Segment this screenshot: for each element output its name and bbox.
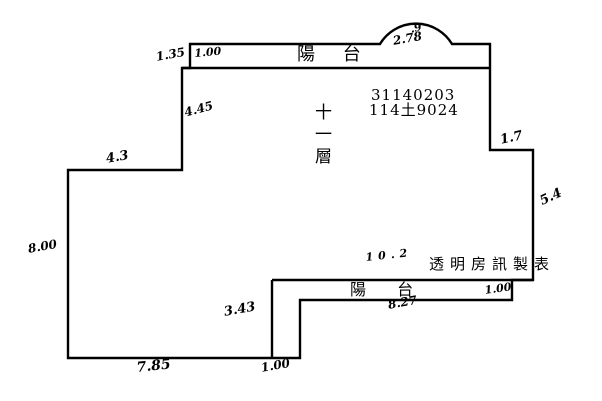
floor-label: 十一層 (312, 103, 329, 169)
dim-upper-balcony-left: 1.00 (194, 46, 222, 59)
dim-bottom-wall: 7.85 (136, 357, 171, 374)
unit-outline (68, 24, 533, 358)
publisher-label: 透明房訊製表 (429, 257, 555, 272)
dim-lower-balcony-end: 1.00 (484, 281, 512, 296)
floor-plan-sheet: 陽 台 31140203 114土9024 十一層 透明房訊製表 陽 台 1.3… (0, 0, 602, 401)
upper-balcony-label: 陽 台 (297, 46, 361, 64)
dim-left-step-wall: 4.3 (105, 149, 130, 166)
building-number: 114土9024 (369, 103, 459, 118)
